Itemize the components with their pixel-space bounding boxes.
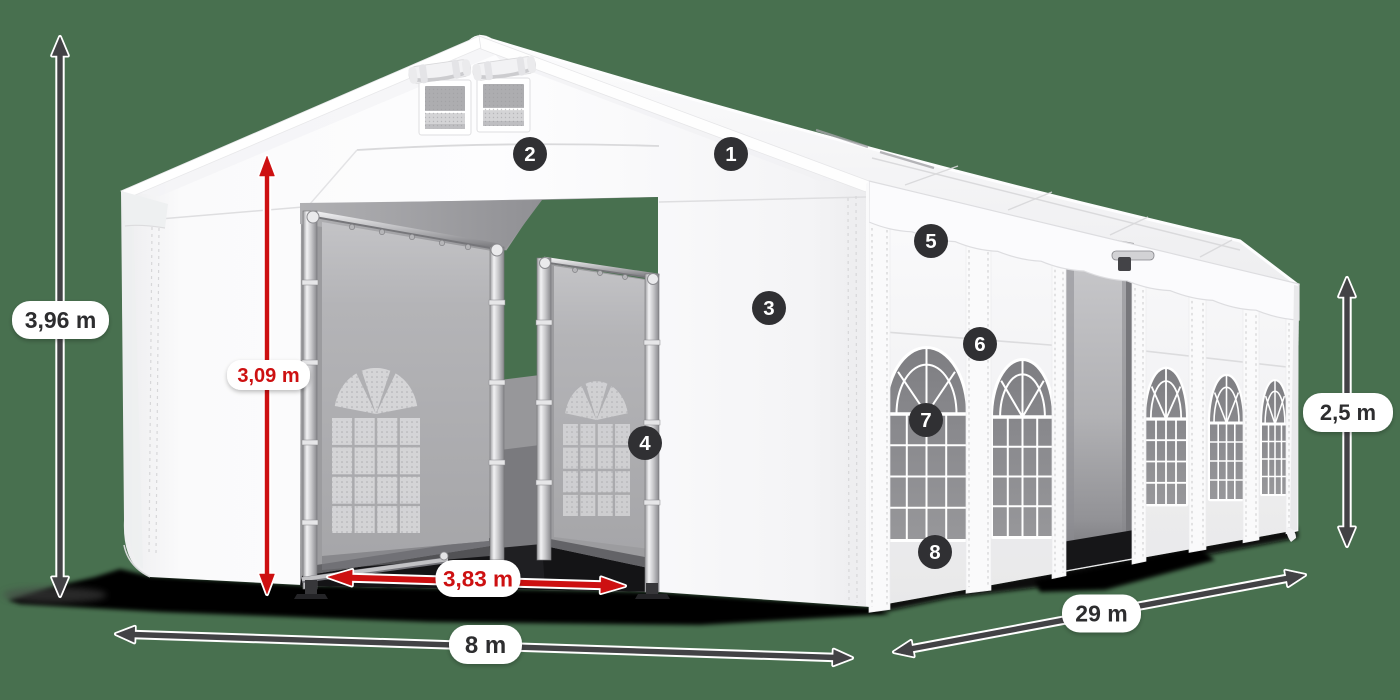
svg-text:1: 1	[725, 143, 736, 166]
svg-text:3,83 m: 3,83 m	[443, 566, 513, 591]
svg-text:2: 2	[524, 143, 535, 166]
svg-text:3,09 m: 3,09 m	[237, 365, 299, 387]
svg-text:3: 3	[763, 297, 774, 320]
svg-text:5: 5	[925, 230, 936, 253]
svg-text:29 m: 29 m	[1075, 601, 1127, 627]
svg-text:4: 4	[639, 432, 651, 455]
svg-text:3,96 m: 3,96 m	[25, 307, 97, 333]
svg-text:7: 7	[920, 409, 931, 432]
svg-text:2,5 m: 2,5 m	[1320, 400, 1376, 425]
svg-text:6: 6	[974, 333, 985, 356]
svg-text:8 m: 8 m	[465, 632, 506, 659]
svg-text:8: 8	[929, 541, 940, 564]
